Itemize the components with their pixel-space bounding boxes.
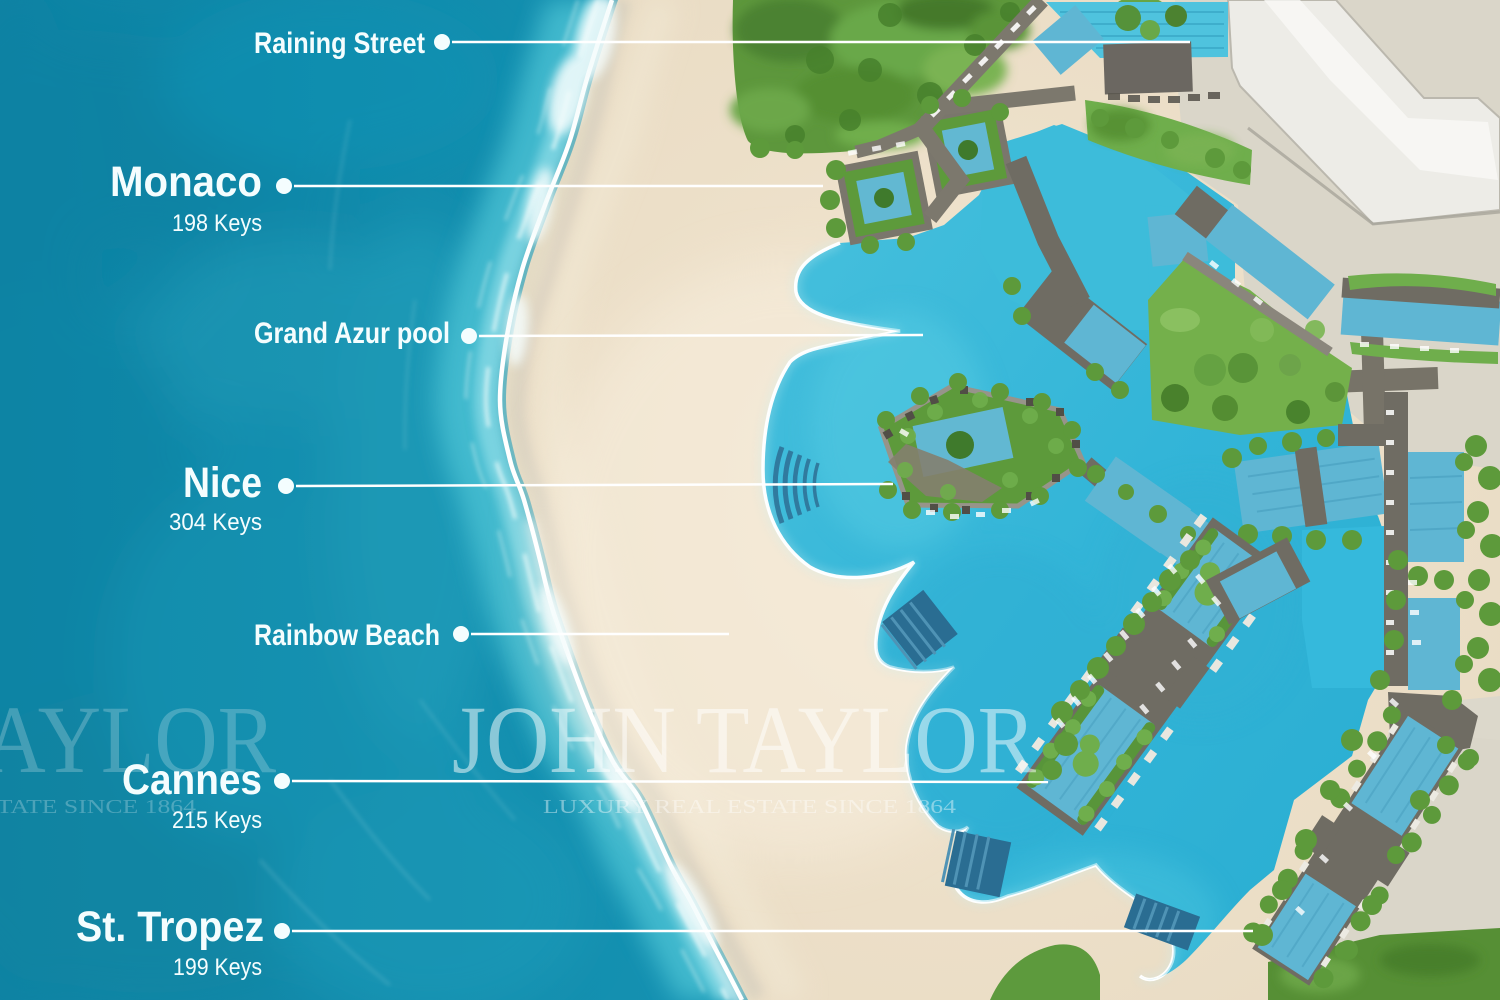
svg-text:Rainbow Beach: Rainbow Beach	[254, 619, 440, 652]
svg-text:St. Tropez: St. Tropez	[76, 903, 264, 951]
svg-text:215 Keys: 215 Keys	[172, 807, 262, 834]
svg-text:199 Keys: 199 Keys	[173, 954, 262, 981]
svg-text:Nice: Nice	[183, 459, 262, 507]
svg-text:304 Keys: 304 Keys	[169, 509, 262, 536]
svg-text:Grand Azur pool: Grand Azur pool	[254, 317, 450, 350]
svg-text:JOHN TAYLOR: JOHN TAYLOR	[452, 686, 1036, 793]
svg-text:Monaco: Monaco	[110, 158, 262, 206]
svg-text:Raining Street: Raining Street	[254, 27, 425, 60]
svg-text:LUXURY REAL ESTATE SINCE 1864: LUXURY REAL ESTATE SINCE 1864	[543, 796, 956, 818]
svg-text:198 Keys: 198 Keys	[172, 210, 262, 237]
svg-text:Cannes: Cannes	[122, 756, 262, 804]
